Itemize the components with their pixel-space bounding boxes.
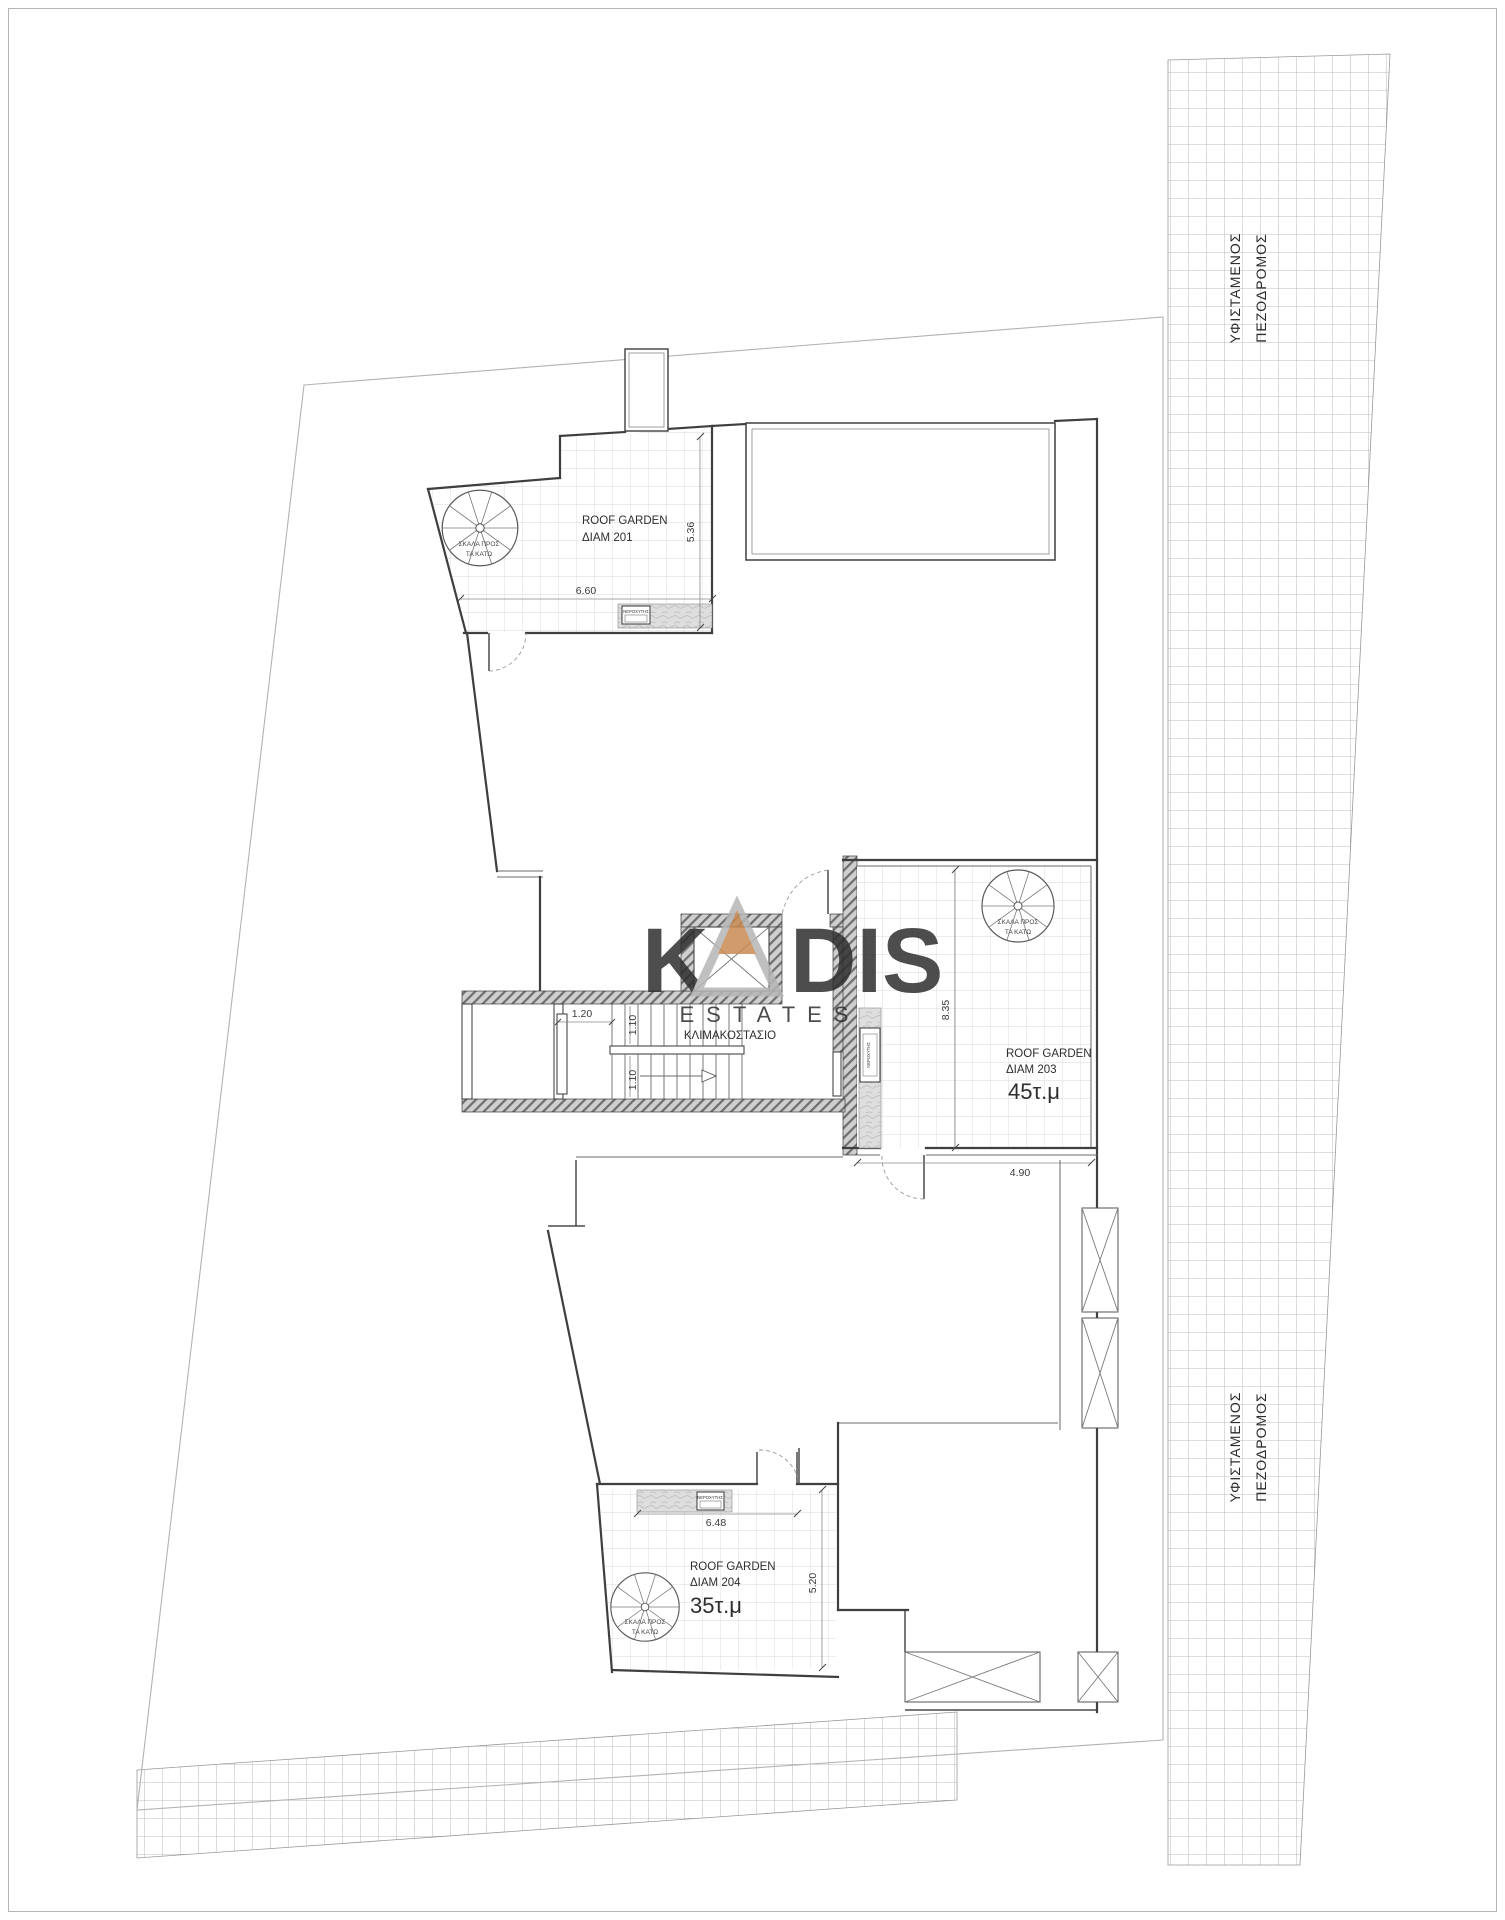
door-swing-203 — [882, 1155, 924, 1199]
unit-203-title: ROOF GARDEN — [1006, 1048, 1092, 1060]
door-panel-core-right — [833, 1052, 841, 1096]
dim-rg203-width: 4.90 — [1010, 1167, 1031, 1179]
dim-stair-left: 1.20 — [572, 1008, 593, 1020]
stair-core-label: ΚΛΙΜΑΚΟΣΤΑΣΙΟ — [684, 1030, 776, 1042]
fixture-label-201: ΝΕΡΟΧΥΤΗΣ — [623, 609, 649, 614]
right-walkway-band: ΥΦΙΣΤΑΜΕΝΟΣ ΠΕΖΟΔΡΟΜΟΣ ΥΦΙΣΤΑΜΕΝΟΣ ΠΕΖΟΔ… — [1168, 54, 1390, 1865]
unit-204-roof-garden: ΝΕΡΟΧΥΤΗΣ ΣΚΑΛΑ ΠΡΟΣ ΤΑ ΚΑΤΩ ROOF GARDEN… — [597, 1423, 908, 1677]
fixture-label-203: ΝΕΡΟΧΥΤΗΣ — [866, 1042, 871, 1068]
unit-204-name: ΔΙΑΜ 204 — [690, 1577, 741, 1589]
stair-direction-arrow — [702, 1070, 716, 1082]
dim-rg201-width: 6.60 — [576, 585, 597, 597]
spiral-staircase-203: ΣΚΑΛΑ ΠΡΟΣ ΤΑ ΚΑΤΩ — [982, 870, 1054, 942]
dim-rg204-height: 5.20 — [807, 1573, 819, 1594]
spiral-204-label-line2: ΤΑ ΚΑΤΩ — [632, 1629, 658, 1636]
watermark-estates: ESTATES — [680, 1002, 861, 1027]
spiral-201-label-line2: ΤΑ ΚΑΤΩ — [466, 551, 492, 558]
skylight-box-2 — [1082, 1318, 1118, 1428]
skylight-box-4 — [1078, 1652, 1118, 1702]
spiral-204-label-line1: ΣΚΑΛΑ ΠΡΟΣ — [625, 1619, 666, 1626]
spiral-203-label-line1: ΣΚΑΛΑ ΠΡΟΣ — [998, 919, 1039, 926]
street-label-bottom-line2: ΠΕΖΟΔΡΟΜΟΣ — [1253, 1392, 1269, 1501]
skylight-box-3 — [905, 1652, 1040, 1702]
floor-plan-canvas: ΥΦΙΣΤΑΜΕΝΟΣ ΠΕΖΟΔΡΟΜΟΣ ΥΦΙΣΤΑΜΕΝΟΣ ΠΕΖΟΔ… — [0, 0, 1505, 1920]
spiral-203-label-line2: ΤΑ ΚΑΤΩ — [1005, 929, 1031, 936]
door-swing-201 — [489, 633, 526, 671]
street-label-top-line2: ΠΕΖΟΔΡΟΜΟΣ — [1253, 233, 1269, 342]
dim-stair-flight-b: 1.10 — [627, 1070, 639, 1091]
spiral-staircase-204: ΣΚΑΛΑ ΠΡΟΣ ΤΑ ΚΑΤΩ — [611, 1573, 679, 1641]
watermark-k: K — [642, 910, 708, 1012]
dim-rg204-width: 6.48 — [706, 1517, 727, 1529]
unit-204-title: ROOF GARDEN — [690, 1561, 776, 1573]
fixture-label-204: ΝΕΡΟΧΥΤΗΣ — [697, 1495, 723, 1500]
bottom-street-band — [137, 1712, 957, 1858]
unit-201-name: ΔΙΑΜ 201 — [582, 532, 633, 544]
street-label-top-line1: ΥΦΙΣΤΑΜΕΝΟΣ — [1227, 233, 1243, 344]
spiral-staircase-201: ΣΚΑΛΑ ΠΡΟΣ ΤΑ ΚΑΤΩ — [442, 490, 518, 566]
unit-201-roof-garden: ΝΕΡΟΧΥΤΗΣ ΣΚΑΛΑ ΠΡΟΣ ΤΑ ΚΑΤΩ ROOF GARDEN… — [428, 349, 716, 671]
roof-bulkhead — [625, 349, 668, 431]
kadis-watermark: K DIS ESTATES — [642, 906, 943, 1027]
left-building-edge — [467, 633, 843, 1484]
dim-stair-flight-a: 1.10 — [627, 1015, 639, 1036]
dim-rg201-height: 5.36 — [685, 522, 697, 543]
watermark-dis: DIS — [790, 910, 943, 1012]
door-swing-204 — [759, 1450, 799, 1482]
spiral-201-label-line1: ΣΚΑΛΑ ΠΡΟΣ — [459, 541, 500, 548]
street-label-bottom-line1: ΥΦΙΣΤΑΜΕΝΟΣ — [1227, 1392, 1243, 1503]
unit-204-area: 35τ.μ — [690, 1593, 742, 1618]
door-panel-core-left — [557, 1014, 567, 1094]
right-service-strip — [838, 1160, 1118, 1710]
skylight-box-1 — [1082, 1208, 1118, 1312]
floor-plan-page: ΥΦΙΣΤΑΜΕΝΟΣ ΠΕΖΟΔΡΟΜΟΣ ΥΦΙΣΤΑΜΕΝΟΣ ΠΕΖΟΔ… — [0, 0, 1505, 1920]
door-swing-core — [782, 870, 828, 914]
unit-201-title: ROOF GARDEN — [582, 515, 668, 527]
unit-203-name: ΔΙΑΜ 203 — [1006, 1064, 1057, 1076]
unit-203-area: 45τ.μ — [1008, 1079, 1060, 1104]
